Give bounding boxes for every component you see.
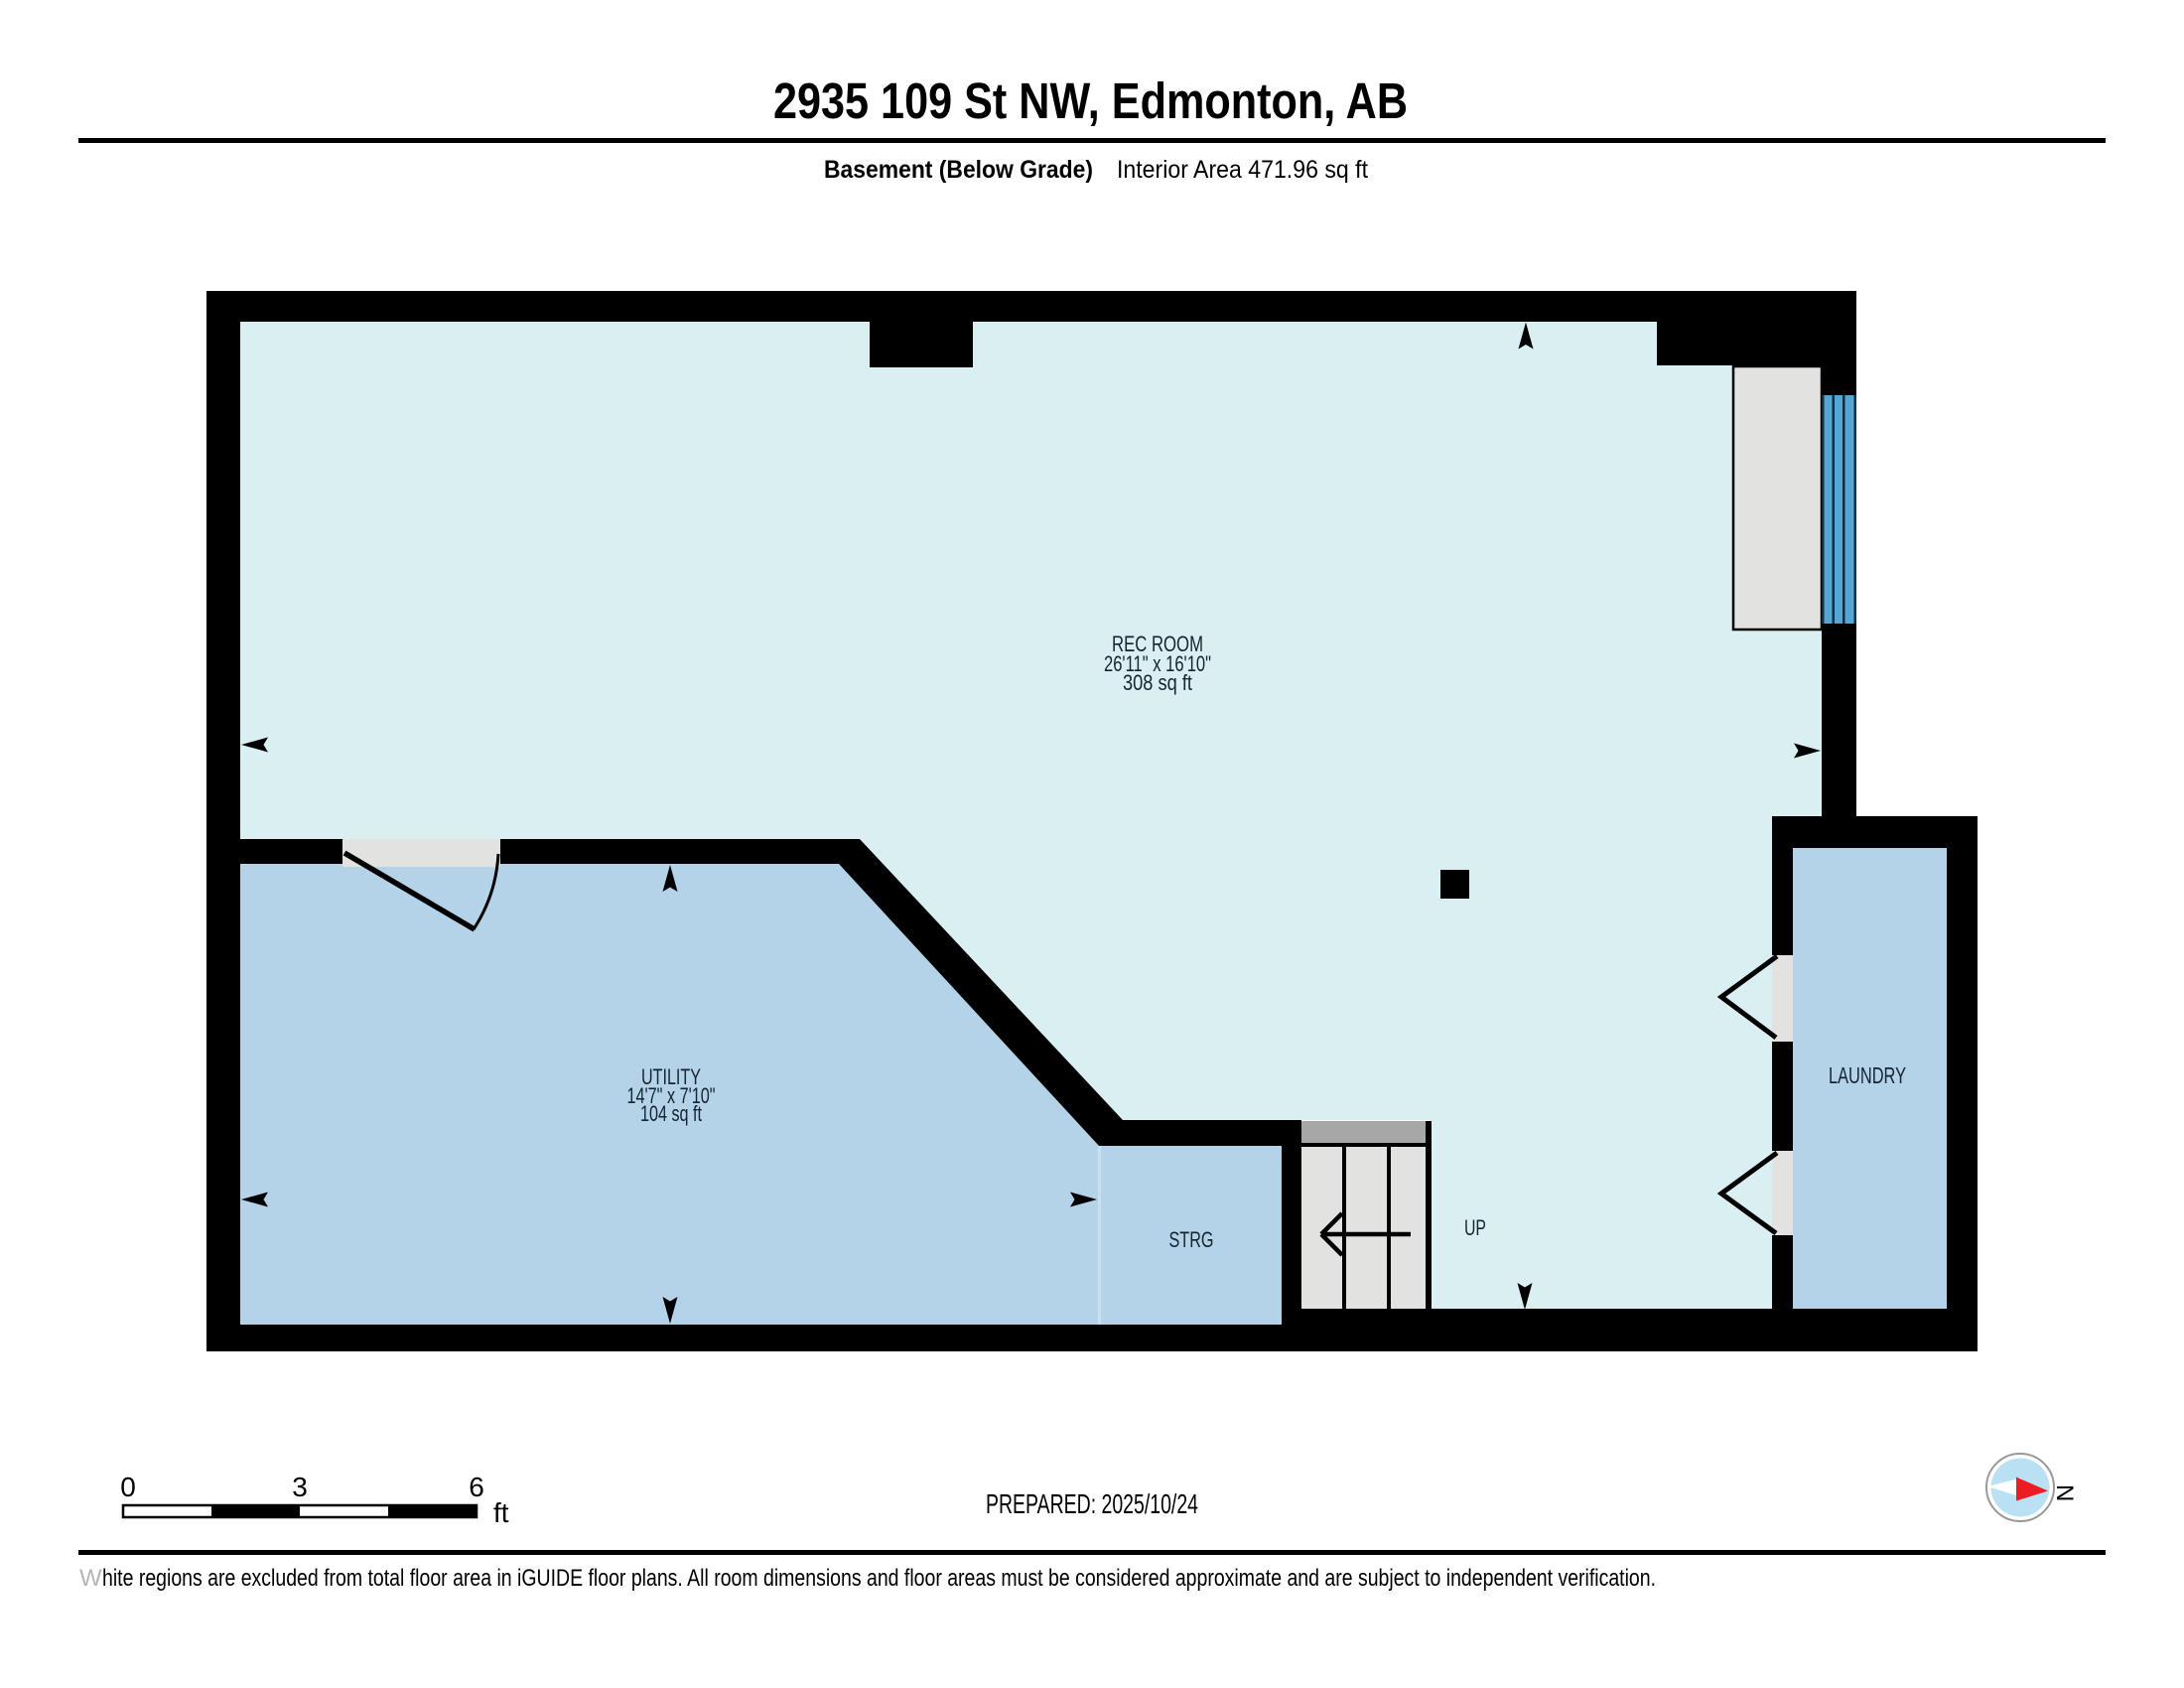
svg-text:104 sq ft: 104 sq ft (640, 1101, 702, 1126)
svg-text:LAUNDRY: LAUNDRY (1829, 1062, 1906, 1088)
svg-text:3: 3 (292, 1472, 308, 1502)
svg-text:ft: ft (493, 1497, 509, 1528)
svg-text:Interior Area 471.96 sq ft: Interior Area 471.96 sq ft (1117, 156, 1368, 184)
svg-text:Basement (Below Grade): Basement (Below Grade) (824, 156, 1093, 184)
svg-text:W: W (79, 1565, 102, 1592)
svg-text:2935 109 St NW, Edmonton, AB: 2935 109 St NW, Edmonton, AB (773, 72, 1408, 129)
svg-text:6: 6 (469, 1472, 484, 1502)
svg-text:PREPARED: 2025/10/24: PREPARED: 2025/10/24 (986, 1488, 1198, 1519)
svg-text:STRG: STRG (1169, 1227, 1214, 1252)
svg-text:308 sq ft: 308 sq ft (1123, 670, 1192, 695)
svg-text:N: N (2051, 1484, 2078, 1501)
svg-text:hite regions are excluded from: hite regions are excluded from total flo… (102, 1565, 1656, 1592)
svg-text:0: 0 (120, 1472, 136, 1502)
svg-text:UP: UP (1464, 1215, 1486, 1240)
